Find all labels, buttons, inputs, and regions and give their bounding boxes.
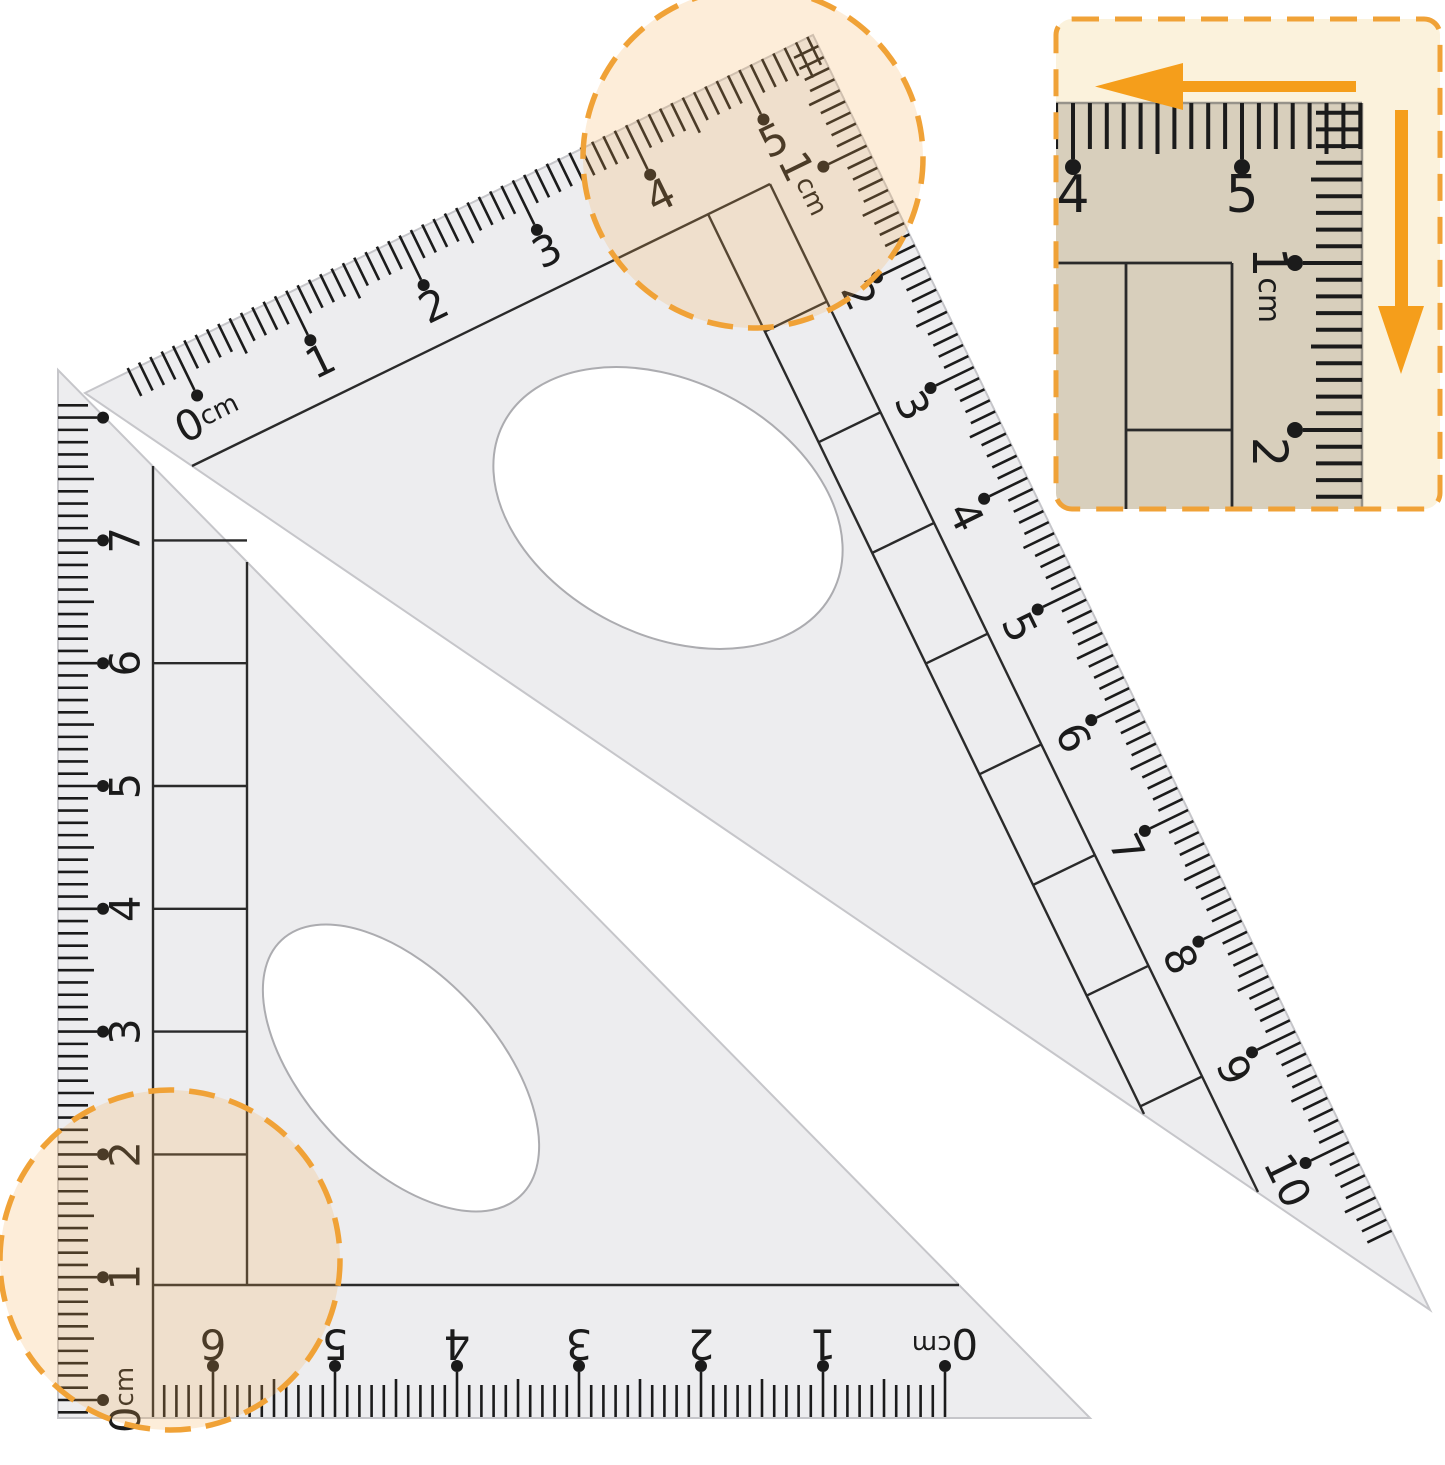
- scale-label: 5: [101, 773, 150, 800]
- dashed-circle-icon: [583, 0, 923, 328]
- scale-label: 2: [1241, 437, 1297, 468]
- scale-label: 6: [101, 650, 150, 677]
- scale-label: 3: [101, 1018, 150, 1045]
- scale-label: 7: [101, 527, 150, 554]
- scale-label: 4: [444, 1320, 471, 1369]
- product-photo-canvas: 0cm12345 1cm2345678910 0cm1234567 0cm123…: [0, 0, 1445, 1465]
- scale-label: 1: [810, 1320, 837, 1369]
- highlight-circle-top: [583, 0, 923, 328]
- scale-label: 2: [688, 1320, 715, 1369]
- scale-label: 4: [101, 895, 150, 922]
- dashed-circle-icon: [0, 1090, 340, 1430]
- scale-label: 5: [1225, 165, 1258, 225]
- cm-dot: [97, 412, 109, 424]
- zoom-inset: 45 1cm2: [1040, 19, 1440, 523]
- cm-dot: [191, 389, 203, 401]
- scale-label: 4: [1056, 165, 1089, 225]
- cm-dot: [939, 1360, 951, 1372]
- cm-dot: [1287, 422, 1303, 438]
- highlight-circle-bottom: [0, 1090, 340, 1430]
- scale-label: 3: [566, 1320, 593, 1369]
- ruler-product-illustration: 0cm12345 1cm2345678910 0cm1234567 0cm123…: [0, 0, 1445, 1465]
